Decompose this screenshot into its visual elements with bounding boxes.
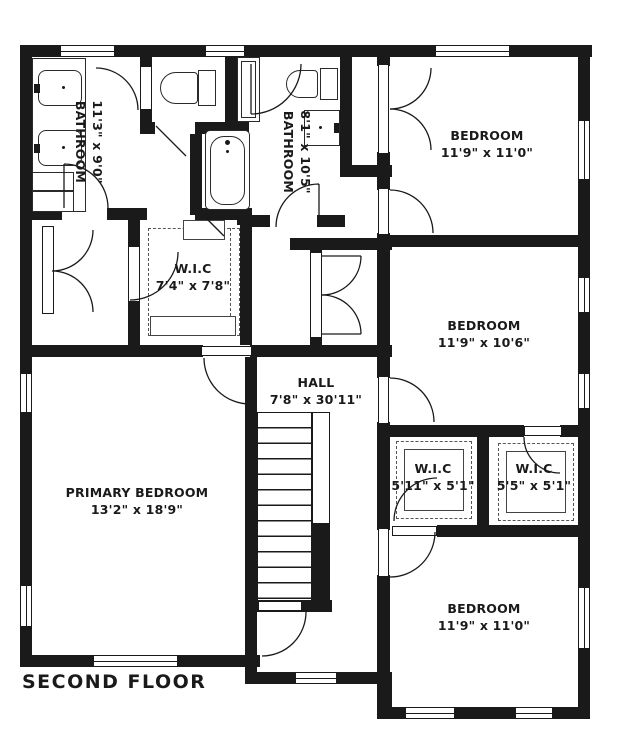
room-dims: 11'3" x 9'0" bbox=[88, 100, 105, 183]
room-name: HALL bbox=[270, 375, 362, 392]
room-name: PRIMARY BEDROOM bbox=[66, 485, 209, 502]
door-panel bbox=[378, 528, 389, 577]
door-panel bbox=[258, 601, 302, 611]
wall bbox=[245, 357, 257, 672]
wall bbox=[20, 345, 203, 357]
floor-title: SECOND FLOOR bbox=[22, 671, 206, 693]
floor-plan: 11'3" x 9'0" BATHROOM 8'1" x 10'5" BATHR… bbox=[0, 0, 620, 740]
door-panel bbox=[42, 226, 54, 314]
faucet-icon bbox=[34, 84, 40, 93]
wall bbox=[249, 215, 270, 227]
door-panel bbox=[378, 376, 389, 424]
closet-shelf bbox=[183, 220, 225, 240]
room-label-wic2: W.I.C 5'11" x 5'1" bbox=[391, 461, 474, 495]
window bbox=[20, 585, 32, 627]
room-label-bathroom2: 8'1" x 10'5" BATHROOM bbox=[279, 110, 313, 193]
window bbox=[60, 45, 115, 57]
wall bbox=[377, 575, 390, 719]
room-name: BATHROOM bbox=[279, 110, 296, 193]
linen-shelf bbox=[32, 191, 74, 212]
window bbox=[405, 707, 455, 719]
drain-icon bbox=[62, 146, 65, 149]
wall bbox=[377, 152, 390, 190]
window bbox=[295, 672, 337, 684]
door-arc bbox=[262, 612, 306, 656]
door-panel bbox=[392, 526, 437, 536]
wall bbox=[477, 437, 489, 525]
window bbox=[578, 277, 590, 313]
room-label-bedroom3: BEDROOM 11'9" x 11'0" bbox=[438, 601, 530, 635]
room-name: BEDROOM bbox=[438, 318, 530, 335]
window bbox=[515, 707, 553, 719]
window bbox=[93, 655, 178, 667]
door-leaf bbox=[156, 126, 186, 156]
room-dims: 11'9" x 11'0" bbox=[441, 145, 533, 162]
toilet-fixture bbox=[198, 70, 216, 106]
wall bbox=[390, 235, 590, 247]
wall bbox=[560, 425, 590, 437]
bathtub-inner bbox=[210, 136, 245, 205]
room-label-primary: PRIMARY BEDROOM 13'2" x 18'9" bbox=[66, 485, 209, 519]
shower-glass bbox=[241, 61, 256, 118]
room-dims: 5'5" x 5'1" bbox=[497, 478, 571, 495]
room-name: BEDROOM bbox=[441, 128, 533, 145]
window bbox=[205, 45, 245, 57]
room-dims: 7'4" x 7'8" bbox=[156, 278, 230, 295]
room-name: W.I.C bbox=[391, 461, 474, 478]
door-panel bbox=[310, 252, 322, 338]
wall bbox=[107, 208, 147, 220]
toilet-fixture bbox=[160, 72, 198, 104]
wall bbox=[437, 525, 590, 537]
wall bbox=[190, 134, 202, 215]
stair-rail-wall bbox=[312, 524, 330, 600]
door-arc bbox=[322, 295, 361, 334]
room-label-wic1: W.I.C 7'4" x 7'8" bbox=[156, 261, 230, 295]
door-panel bbox=[378, 64, 389, 154]
door-arc bbox=[390, 190, 433, 233]
window bbox=[20, 373, 32, 413]
door-arc bbox=[390, 532, 435, 577]
door-arc bbox=[390, 109, 431, 150]
room-label-wic3: W.I.C 5'5" x 5'1" bbox=[497, 461, 571, 495]
room-dims: 8'1" x 10'5" bbox=[296, 110, 313, 193]
drain-icon bbox=[319, 126, 322, 129]
room-name: W.I.C bbox=[156, 261, 230, 278]
toilet-fixture bbox=[286, 70, 318, 98]
room-label-bedroom2: BEDROOM 11'9" x 10'6" bbox=[438, 318, 530, 352]
window bbox=[578, 587, 590, 649]
door-panel bbox=[140, 66, 152, 110]
room-dims: 13'2" x 18'9" bbox=[66, 502, 209, 519]
wall bbox=[377, 422, 390, 530]
room-dims: 5'11" x 5'1" bbox=[391, 478, 474, 495]
room-dims: 7'8" x 30'11" bbox=[270, 392, 362, 409]
room-dims: 11'9" x 11'0" bbox=[438, 618, 530, 635]
wall bbox=[250, 345, 310, 357]
room-dims: 11'9" x 10'6" bbox=[438, 335, 530, 352]
room-label-bedroom1: BEDROOM 11'9" x 11'0" bbox=[441, 128, 533, 162]
staircase bbox=[257, 412, 312, 600]
wall bbox=[377, 45, 390, 66]
door-panel bbox=[201, 346, 252, 356]
closet-shelf bbox=[150, 316, 236, 336]
door-arc bbox=[322, 256, 361, 295]
wall bbox=[377, 233, 390, 378]
wall bbox=[390, 425, 524, 437]
door-panel bbox=[128, 246, 140, 302]
faucet-icon bbox=[225, 140, 230, 145]
window bbox=[578, 120, 590, 180]
faucet-icon bbox=[334, 123, 339, 133]
door-arc bbox=[204, 358, 250, 404]
room-name: BATHROOM bbox=[71, 100, 88, 183]
room-name: BEDROOM bbox=[438, 601, 530, 618]
room-label-bathroom1: 11'3" x 9'0" BATHROOM bbox=[71, 100, 105, 183]
drain-icon bbox=[62, 86, 65, 89]
wall bbox=[240, 208, 252, 345]
stair-railing bbox=[312, 412, 330, 524]
door-arc bbox=[390, 378, 434, 422]
door-panel bbox=[378, 188, 389, 235]
wall bbox=[317, 215, 345, 227]
window bbox=[578, 373, 590, 409]
wall bbox=[140, 122, 155, 134]
room-label-hall: HALL 7'8" x 30'11" bbox=[270, 375, 362, 409]
window bbox=[435, 45, 510, 57]
door-arc bbox=[390, 68, 431, 109]
door-panel bbox=[524, 426, 562, 436]
drain-icon bbox=[226, 150, 229, 153]
linen-shelf bbox=[32, 172, 74, 191]
room-name: W.I.C bbox=[497, 461, 571, 478]
faucet-icon bbox=[34, 144, 40, 153]
toilet-fixture bbox=[320, 68, 338, 100]
door-arc bbox=[52, 230, 93, 312]
wall bbox=[340, 45, 352, 177]
